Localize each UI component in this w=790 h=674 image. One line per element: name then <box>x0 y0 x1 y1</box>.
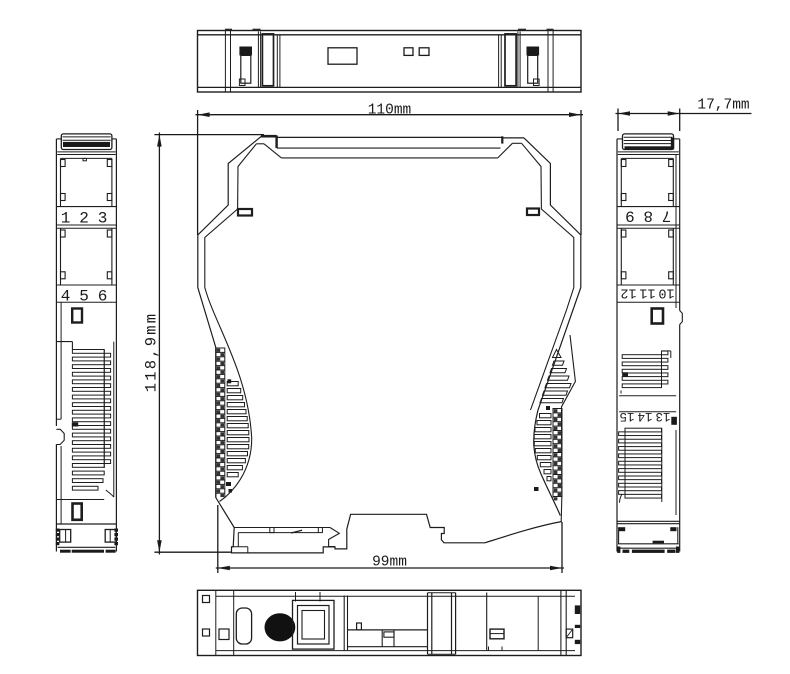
svg-text:118,9mm: 118,9mm <box>143 312 161 393</box>
svg-text:11: 11 <box>639 285 655 300</box>
svg-text:14: 14 <box>637 409 652 423</box>
svg-text:8: 8 <box>643 207 653 225</box>
svg-text:17,7mm: 17,7mm <box>697 98 749 114</box>
svg-text:13: 13 <box>655 409 670 423</box>
svg-text:12: 12 <box>620 285 636 300</box>
svg-text:7: 7 <box>662 207 672 225</box>
svg-text:99mm: 99mm <box>372 555 407 571</box>
svg-text:9: 9 <box>625 207 635 225</box>
svg-text:15: 15 <box>619 409 634 423</box>
svg-text:10: 10 <box>658 285 674 300</box>
svg-text:110mm: 110mm <box>368 102 412 118</box>
